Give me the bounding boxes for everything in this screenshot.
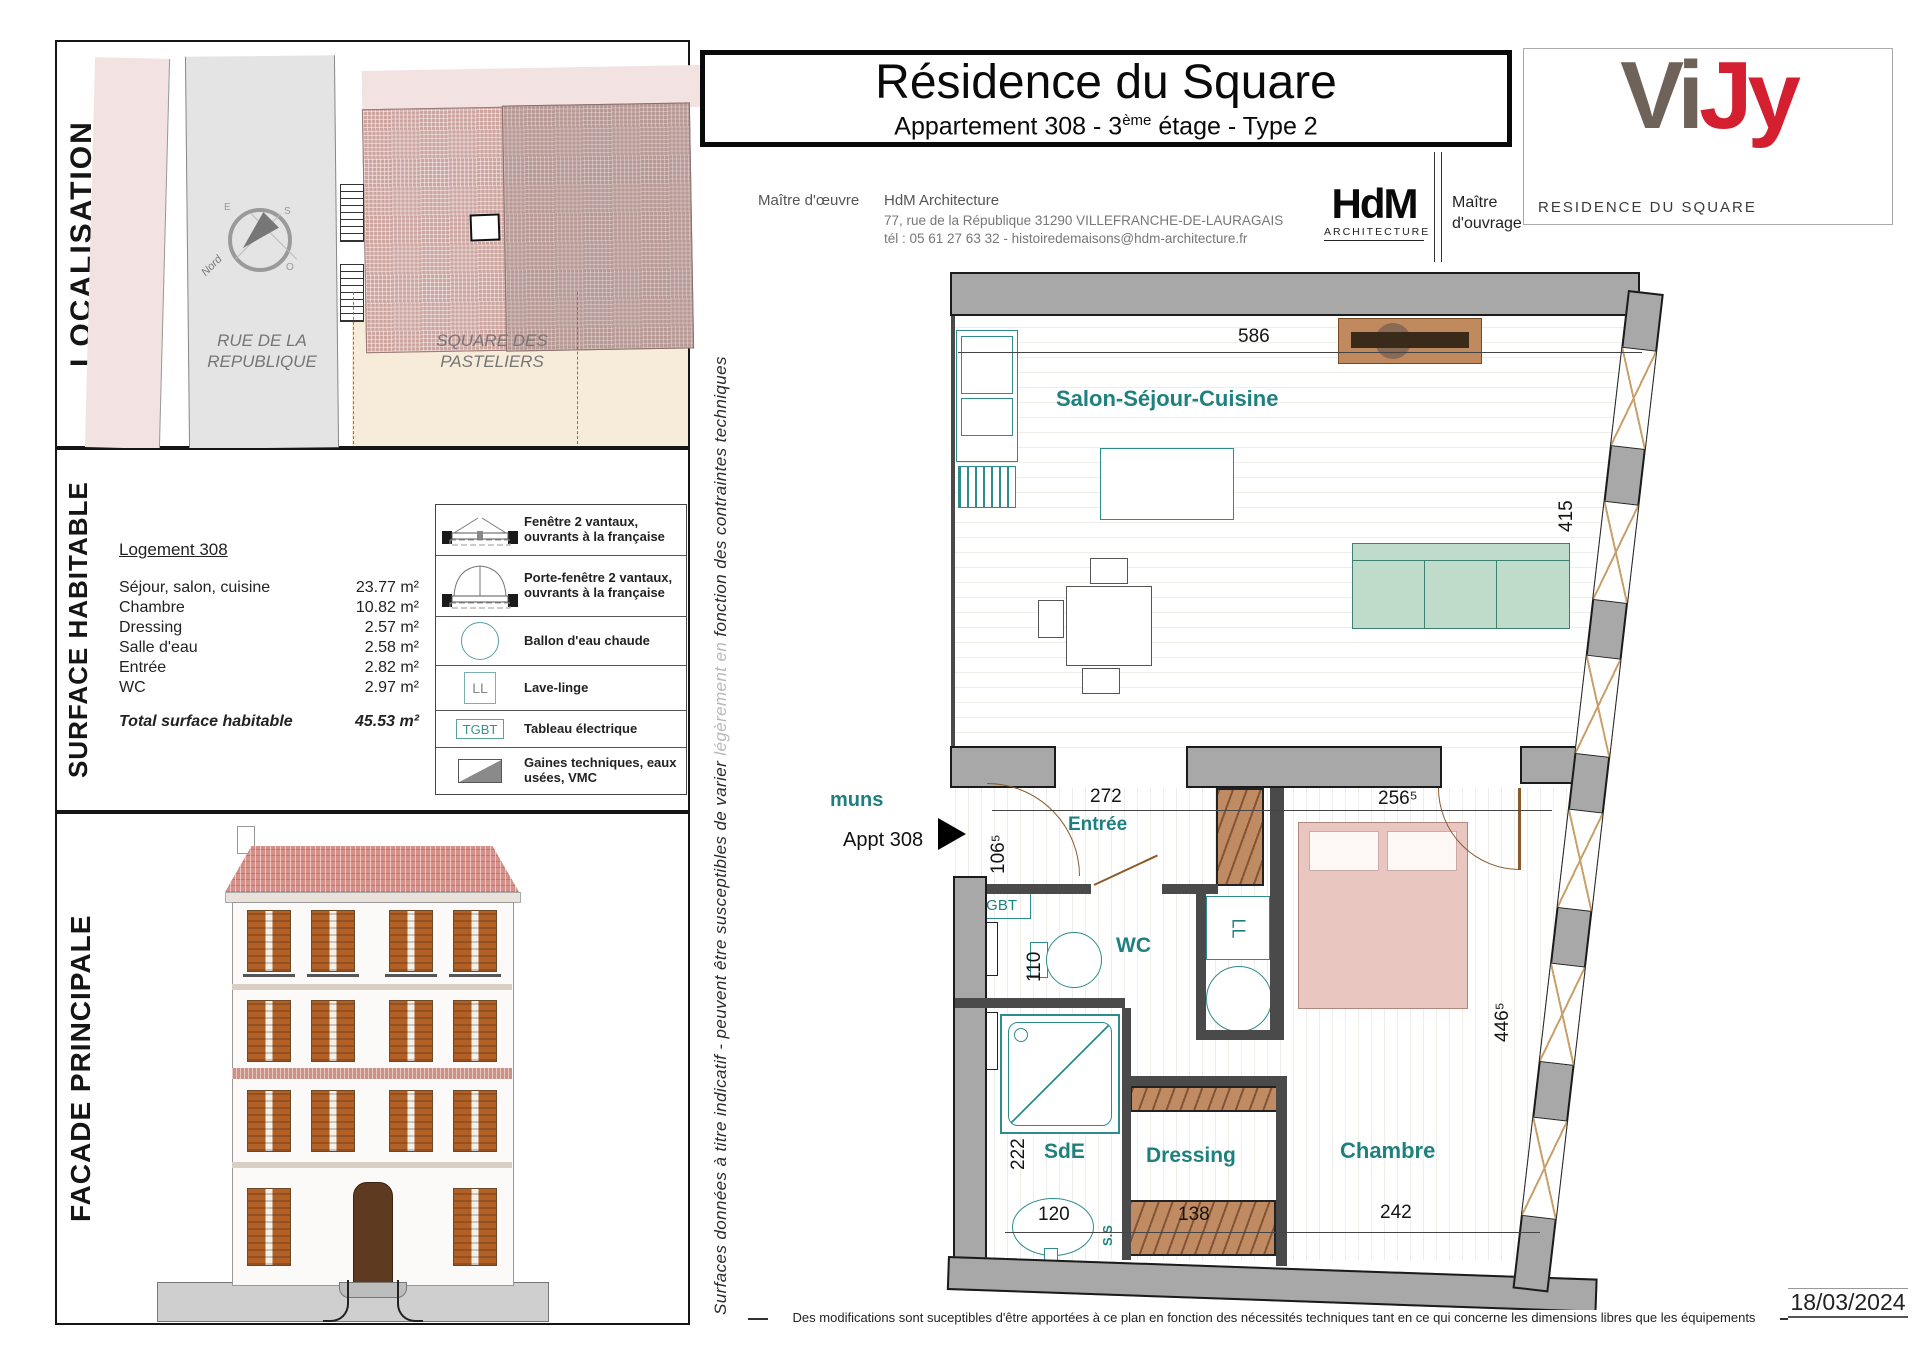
legend-row: LL Lave-linge	[436, 666, 686, 711]
facade-window	[247, 1000, 291, 1062]
wall	[1196, 884, 1206, 1036]
legend-label: Porte-fenêtre 2 vantaux, ouvrants à la f…	[524, 571, 686, 601]
dim-chambre-height: 446⁵	[1492, 972, 1514, 1042]
communs-label: muns	[830, 789, 883, 812]
dim-line	[958, 352, 1642, 353]
surface-row: Chambre10.82 m²	[119, 598, 419, 618]
room-label-ss: S.S	[1100, 1200, 1115, 1246]
square-label: SQUARE DESPASTELIERS	[412, 330, 572, 373]
balcony-icon	[340, 264, 364, 322]
apartment-marker	[470, 213, 501, 241]
dim-chambre-width: 242	[1380, 1202, 1412, 1224]
dim-entry-door: 106⁵	[988, 812, 1010, 874]
chair	[1090, 558, 1128, 584]
compass-o: O	[286, 262, 294, 273]
facade-window	[389, 1090, 433, 1152]
moe-label: Maître d'œuvre	[758, 192, 859, 209]
sofa	[1352, 543, 1570, 629]
facade-railing	[243, 974, 295, 977]
salon-table	[1100, 448, 1234, 520]
kitchen-sink	[961, 336, 1013, 394]
salon-cabinet	[1338, 318, 1482, 364]
room-label-chambre: Chambre	[1340, 1138, 1435, 1164]
brand-logo: ViJy	[1524, 41, 1892, 151]
appt-pointer-icon	[938, 818, 966, 850]
chambre-door-leaf	[1518, 788, 1521, 870]
water-heater-icon	[436, 622, 524, 660]
facade-railing	[449, 974, 501, 977]
legend-label: Gaines techniques, eaux usées, VMC	[524, 756, 686, 786]
room-label-wc: WC	[1116, 934, 1151, 958]
dressing-wardrobe	[1130, 1086, 1278, 1112]
wall	[950, 272, 1640, 316]
facade-window	[453, 910, 497, 972]
moe-phone: tél : 05 61 27 63 32 - histoiredemaisons…	[884, 231, 1247, 246]
facade-frieze	[232, 1068, 512, 1079]
plot-dashed-line	[353, 292, 355, 444]
wall	[953, 876, 987, 1272]
chair	[1082, 668, 1120, 694]
surface-total-row: Total surface habitable 45.53 m²	[119, 712, 419, 732]
legend-row: Fenêtre 2 vantaux, ouvrants à la françai…	[436, 505, 686, 556]
surface-row: Entrée2.82 m²	[119, 658, 419, 678]
toilet-icon	[1046, 932, 1102, 988]
wall	[1122, 1008, 1131, 1260]
electrical-panel-icon: TGBT	[436, 719, 524, 739]
dim-sde-height: 222	[1008, 1112, 1030, 1170]
surface-panel-label: SURFACE HABITABLE	[63, 450, 94, 810]
surface-row: Séjour, salon, cuisine23.77 m²	[119, 578, 419, 598]
dim-salon-height: 415	[1556, 468, 1578, 532]
window-icon	[436, 513, 524, 547]
facade-door	[353, 1182, 393, 1284]
dim-dressing-width: 138	[1178, 1204, 1210, 1226]
header-divider	[1441, 152, 1442, 262]
wall	[1162, 884, 1218, 894]
facade-railing	[385, 974, 437, 977]
brand-box: ViJy RESIDENCE DU SQUARE	[1523, 48, 1893, 225]
facade-window	[311, 910, 355, 972]
wall	[1186, 746, 1442, 788]
balcony-icon	[340, 184, 364, 242]
facade-window	[453, 1188, 497, 1266]
wall	[987, 884, 1091, 894]
facade-window	[453, 1090, 497, 1152]
washer-box: LL	[1206, 896, 1270, 960]
appt-label: Appt 308	[843, 829, 923, 852]
dim-entree-width: 272	[1090, 786, 1122, 808]
plan-sheet: LOCALISATION Nord E S O RUE DE LAREPUBLI…	[0, 0, 1920, 1357]
wall	[947, 1256, 1598, 1313]
room-label-dressing: Dressing	[1146, 1144, 1236, 1168]
wall	[1270, 788, 1284, 1038]
moe-address: 77, rue de la République 31290 VILLEFRAN…	[884, 213, 1283, 228]
building-footprint-dark	[502, 102, 694, 351]
bed	[1298, 822, 1468, 1009]
ducts-icon	[436, 759, 524, 783]
dim-salon-width: 586	[1238, 326, 1270, 348]
wall	[1196, 1030, 1284, 1040]
sheet-subtitle: Appartement 308 - 3ème étage - Type 2	[894, 112, 1317, 141]
street-label: RUE DE LAREPUBLIQUE	[195, 330, 329, 373]
surfaces-disclaimer: Surfaces données à titre indicatif - peu…	[704, 250, 738, 1315]
facade-window	[247, 1090, 291, 1152]
plot-dashed-line	[577, 292, 579, 444]
moa-label: Maîtred'ouvrage	[1452, 192, 1522, 234]
room-label-sde: SdE	[1044, 1140, 1085, 1164]
legend-label: Fenêtre 2 vantaux, ouvrants à la françai…	[524, 515, 686, 545]
dim-sde-width: 120	[1038, 1204, 1070, 1226]
date-label: 18/03/2024	[1788, 1288, 1908, 1318]
entree-closet	[1216, 788, 1264, 886]
washer-icon: LL	[436, 672, 524, 704]
localisation-panel: LOCALISATION Nord E S O RUE DE LAREPUBLI…	[55, 40, 690, 448]
map-parcel-left	[85, 57, 170, 449]
legend-label: Ballon d'eau chaude	[524, 634, 654, 649]
legend-row: Ballon d'eau chaude	[436, 617, 686, 666]
dim-line	[992, 810, 1552, 811]
header-divider	[1434, 152, 1435, 262]
compass-s: S	[284, 206, 291, 217]
title-box: Résidence du Square Appartement 308 - 3è…	[700, 50, 1512, 147]
surface-panel: SURFACE HABITABLE Logement 308 Séjour, s…	[55, 448, 690, 812]
facade-window	[247, 1188, 291, 1266]
compass-e: E	[224, 202, 231, 213]
room-label-salon: Salon-Séjour-Cuisine	[1056, 386, 1278, 412]
sheet-title: Résidence du Square	[875, 55, 1337, 110]
room-label-entree: Entrée	[1068, 814, 1127, 836]
wall	[951, 316, 955, 748]
salon-floor	[953, 316, 1641, 748]
compass-icon: Nord E S O	[222, 202, 294, 274]
facade-band	[232, 984, 512, 990]
water-heater-icon	[1206, 966, 1272, 1032]
legend-label: Lave-linge	[524, 681, 592, 696]
wall	[950, 746, 1056, 788]
hdm-logo: HdM ARCHITECTURE	[1324, 182, 1424, 241]
legend-row: Porte-fenêtre 2 vantaux, ouvrants à la f…	[436, 556, 686, 617]
kitchen-unit	[961, 398, 1013, 436]
legend-row: Gaines techniques, eaux usées, VMC	[436, 748, 686, 794]
french-door-icon	[436, 562, 524, 610]
dim-wc: 110	[1024, 926, 1046, 982]
facade-window	[389, 1000, 433, 1062]
facade-panel: FACADE PRINCIPALE	[55, 812, 690, 1325]
wall	[1276, 1076, 1287, 1266]
footer-note: Des modifications sont suceptibles d'êtr…	[768, 1310, 1780, 1325]
surface-table: Séjour, salon, cuisine23.77 m² Chambre10…	[119, 578, 419, 698]
brand-caption: RESIDENCE DU SQUARE	[1538, 199, 1757, 216]
dim-chambre-top: 256⁵	[1378, 788, 1418, 810]
moe-name: HdM Architecture	[884, 192, 999, 209]
dim-line	[1005, 1232, 1540, 1233]
facade-window	[311, 1000, 355, 1062]
surface-row: Salle d'eau2.58 m²	[119, 638, 419, 658]
facade-window	[247, 910, 291, 972]
facade-railing	[307, 974, 359, 977]
surface-row: Dressing2.57 m²	[119, 618, 419, 638]
wall	[955, 998, 1125, 1008]
kitchen-hob	[958, 466, 1016, 508]
wall	[1124, 1076, 1286, 1086]
facade-roof	[225, 846, 519, 892]
dining-table	[1066, 586, 1152, 666]
facade-panel-label: FACADE PRINCIPALE	[65, 814, 97, 1323]
legend-row: TGBT Tableau électrique	[436, 711, 686, 748]
legend-label: Tableau électrique	[524, 722, 641, 737]
facade-window	[453, 1000, 497, 1062]
logement-title: Logement 308	[119, 540, 228, 560]
facade-window	[389, 910, 433, 972]
legend: Fenêtre 2 vantaux, ouvrants à la françai…	[435, 504, 687, 795]
facade-band	[232, 1162, 512, 1168]
facade-stair-rail	[397, 1280, 423, 1322]
chair	[1038, 600, 1064, 638]
facade-window	[311, 1090, 355, 1152]
surface-row: WC2.97 m²	[119, 678, 419, 698]
